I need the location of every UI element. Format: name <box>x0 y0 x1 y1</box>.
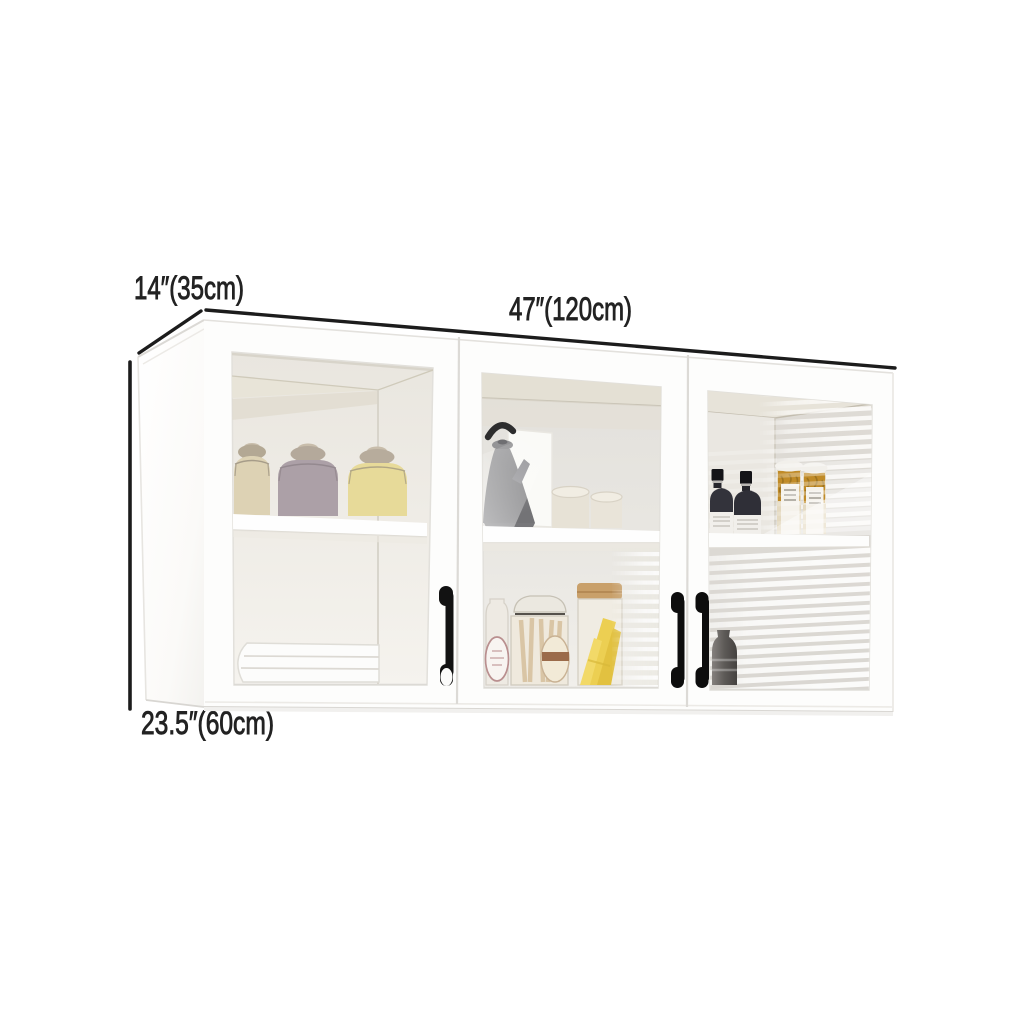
svg-text:47″(120cm): 47″(120cm) <box>509 291 632 327</box>
svg-text:14″(35cm): 14″(35cm) <box>134 270 244 306</box>
